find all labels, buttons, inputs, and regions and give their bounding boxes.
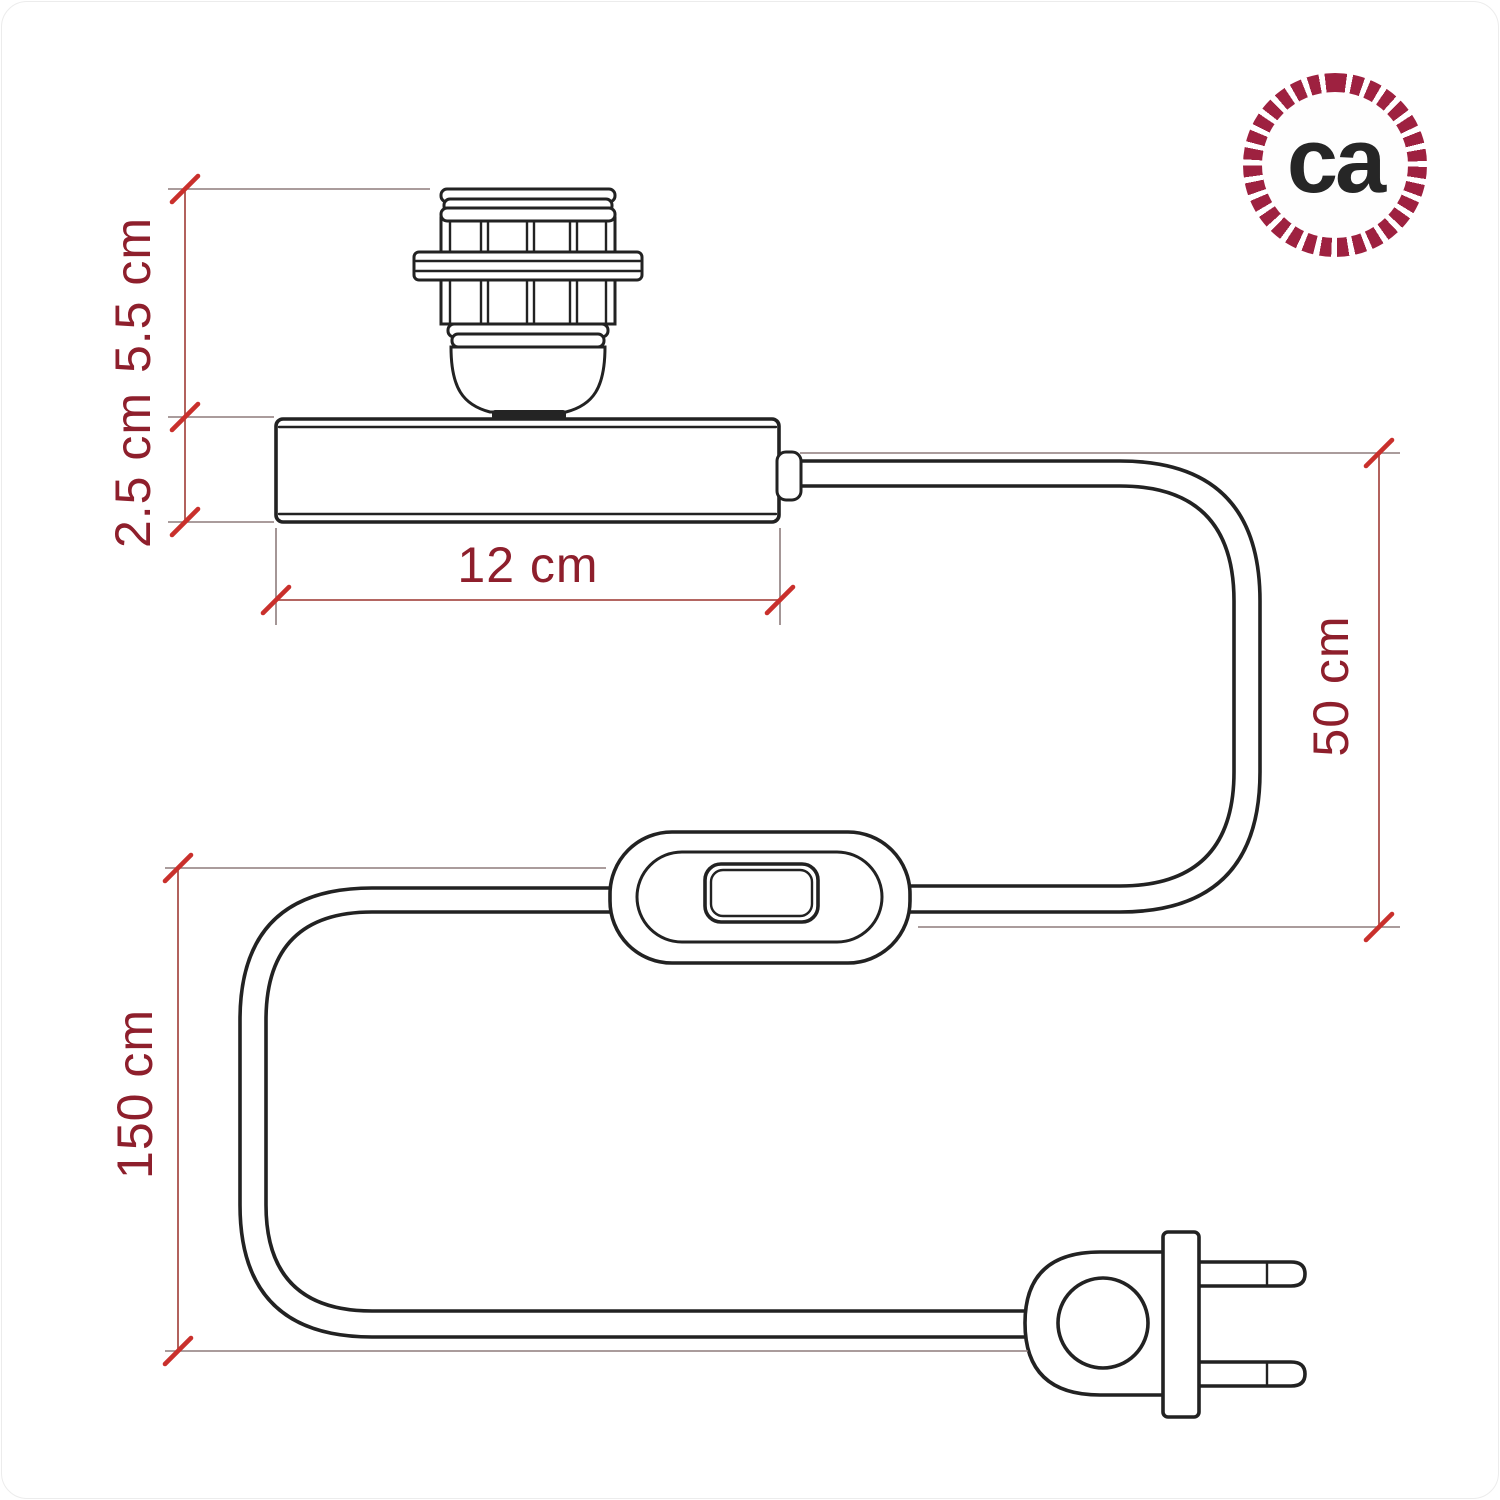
plug-grip-circle (1058, 1278, 1148, 1368)
brand-logo-rope-ring-icon: ca (1262, 92, 1408, 238)
base-cylinder (276, 419, 779, 522)
socket-top-threads (441, 189, 615, 221)
dimension-annotations: 5.5 cm 2.5 cm 12 cm 50 cm 150 cm (105, 176, 1400, 1364)
socket-cup (451, 347, 605, 412)
lamp-socket (414, 189, 642, 420)
base-cable-connector (777, 452, 801, 500)
plug-prong-bottom (1190, 1362, 1305, 1386)
diagram-canvas: 5.5 cm 2.5 cm 12 cm 50 cm 150 cm ca (0, 0, 1500, 1500)
cable-left-inner-line (266, 912, 1040, 1311)
socket-bottom-threads (448, 324, 608, 347)
plug-face-plate (1163, 1232, 1199, 1417)
brand-logo-text: ca (1287, 115, 1383, 207)
label-socket-height: 5.5 cm (105, 217, 161, 373)
inline-switch (610, 832, 910, 963)
lamp-base (276, 419, 801, 522)
plug-prong-top (1190, 1262, 1305, 1286)
socket-neck (492, 410, 566, 420)
switch-rocker-button (711, 870, 812, 916)
label-base-width: 12 cm (457, 537, 598, 593)
power-plug (1025, 1232, 1305, 1417)
label-cable-total: 150 cm (107, 1009, 163, 1179)
brand-logo: ca (1243, 73, 1427, 257)
shade-ring-flange (414, 252, 642, 280)
cable-right-inner-line (798, 486, 1234, 886)
label-cable-to-switch: 50 cm (1303, 615, 1359, 756)
dimension-ticks (165, 176, 1392, 1364)
label-base-height: 2.5 cm (105, 392, 161, 548)
